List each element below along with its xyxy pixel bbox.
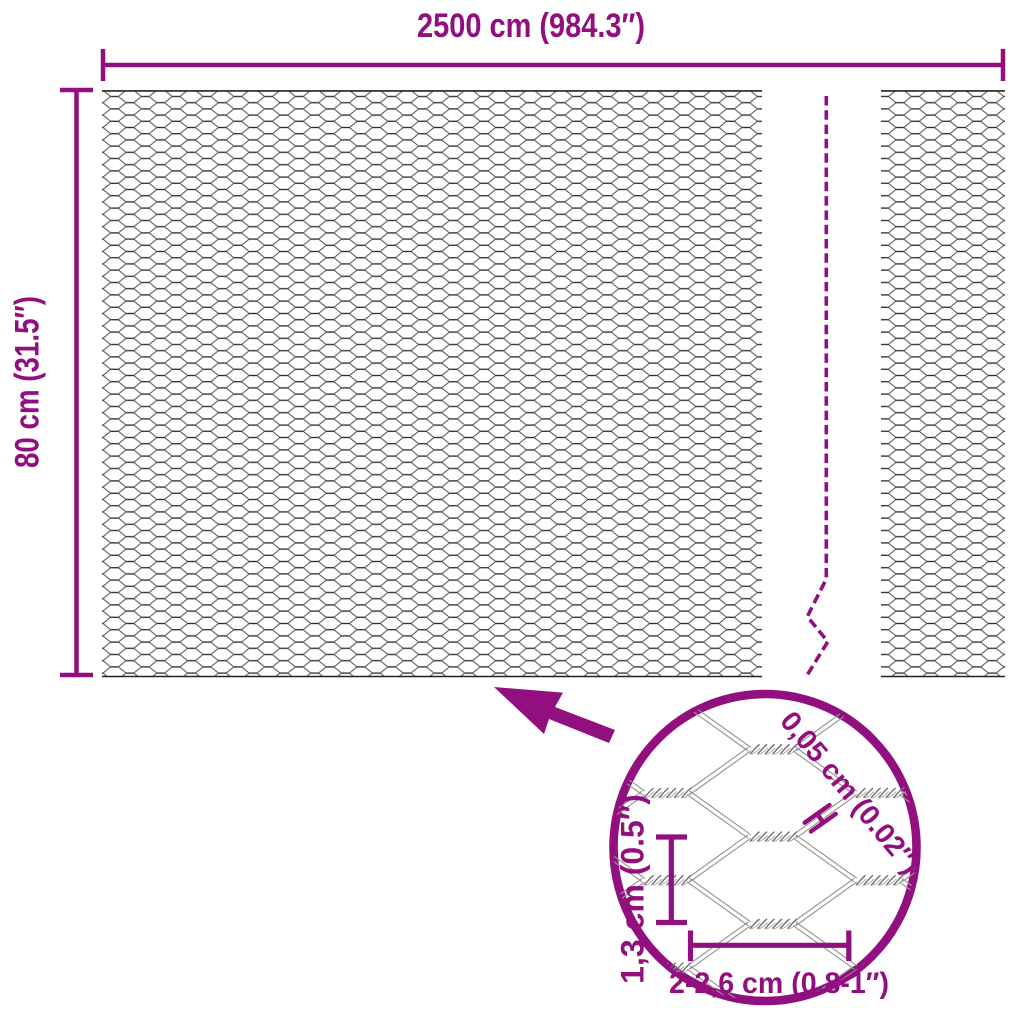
svg-text:1,3 cm (0.5″): 1,3 cm (0.5″) [614,794,650,984]
svg-text:2500 cm (984.3″): 2500 cm (984.3″) [417,7,645,45]
svg-text:2-2,6 cm (0.8-1″): 2-2,6 cm (0.8-1″) [669,967,889,1000]
svg-text:80 cm (31.5″): 80 cm (31.5″) [8,296,46,468]
